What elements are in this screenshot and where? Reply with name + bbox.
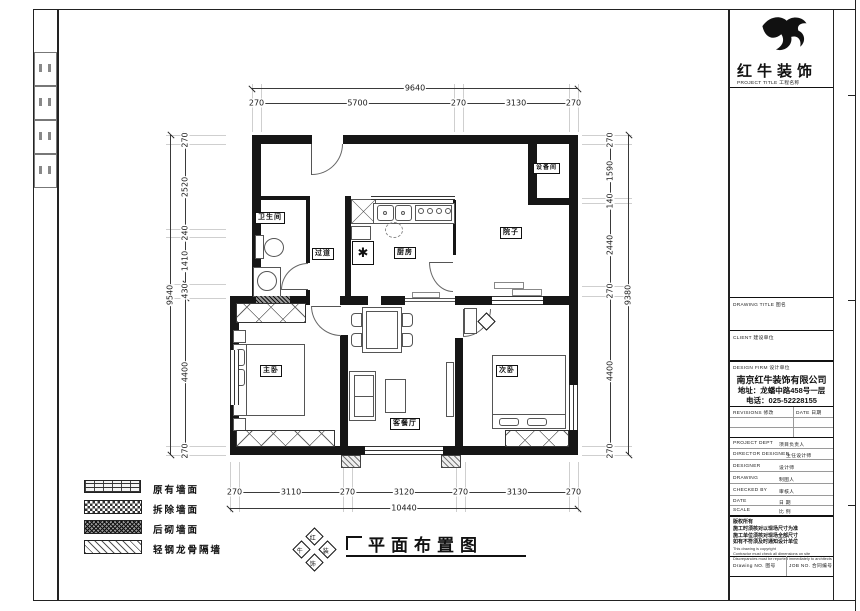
edge-strip-mark bbox=[48, 166, 51, 174]
wall-segment bbox=[306, 196, 310, 263]
job-no-label: JOB NO. 合同编号 bbox=[789, 562, 832, 569]
row-label-zh: 设计师 bbox=[779, 464, 794, 471]
toilet-tank bbox=[255, 235, 264, 259]
shaft-cabinet bbox=[351, 226, 371, 240]
dim-number: 430 bbox=[181, 282, 190, 299]
bed-headboard-line bbox=[493, 414, 565, 415]
dim-number: 270 bbox=[606, 442, 615, 459]
logo-char: 红 bbox=[310, 533, 316, 542]
titleblock-separator bbox=[730, 556, 833, 557]
extension-line bbox=[261, 84, 262, 132]
dim-number: 2520 bbox=[181, 175, 190, 197]
extension-line bbox=[166, 237, 226, 238]
sheet-title: 平面布置图 bbox=[368, 531, 483, 556]
row-label-zh: 审核人 bbox=[779, 488, 794, 495]
door-swing-arc bbox=[312, 144, 343, 175]
room-label-kitchen: 厨房 bbox=[394, 247, 416, 259]
dim-number: 270 bbox=[565, 488, 582, 497]
dim-number: 9640 bbox=[404, 84, 426, 93]
titleblock-separator bbox=[730, 297, 833, 298]
wall-segment bbox=[261, 196, 306, 200]
title-logo: 红 牛 装 饰 bbox=[294, 529, 336, 571]
row-label-en: DATE bbox=[733, 499, 747, 504]
extension-line bbox=[166, 284, 226, 285]
dim-number: 9540 bbox=[166, 284, 175, 306]
notes-block: 版权所有 施工时须核对以现场尺寸为准 施工单位须核对现场全部尺寸 如有不符须及时… bbox=[733, 519, 831, 561]
brand-subtitle: PROJECT TITLE 工程名称 bbox=[737, 79, 800, 86]
sink-drain bbox=[401, 211, 405, 215]
legend-label: 拆除墙面 bbox=[153, 502, 199, 516]
drawing-sheet: 9640270570027031302702703110270312027031… bbox=[0, 0, 860, 611]
extension-line bbox=[454, 84, 455, 132]
row-line bbox=[730, 495, 833, 496]
dim-number: 270 bbox=[181, 131, 190, 148]
bed-headboard-line bbox=[246, 345, 247, 415]
dim-number: 9380 bbox=[624, 284, 633, 306]
extension-line bbox=[166, 229, 226, 230]
door-track bbox=[405, 298, 455, 299]
edge-strip-cell bbox=[34, 120, 57, 154]
edge-strip-mark bbox=[39, 64, 42, 72]
dim-number: 1410 bbox=[181, 249, 190, 271]
dim-number: 270 bbox=[450, 99, 467, 108]
wall-segment bbox=[340, 296, 352, 305]
revisions-row-line bbox=[730, 417, 833, 418]
edge-strip-mark bbox=[48, 98, 51, 106]
title-logo-diamond: 饰 bbox=[305, 553, 323, 571]
edge-strip-mark bbox=[39, 132, 42, 140]
dim-number: 3120 bbox=[393, 488, 415, 497]
revisions-row-line bbox=[730, 427, 833, 428]
dim-number: 270 bbox=[565, 99, 582, 108]
frame-outer-right bbox=[855, 0, 856, 611]
dim-number: 3130 bbox=[505, 99, 527, 108]
sliding-door-panel bbox=[512, 289, 542, 296]
titleblock-separator bbox=[730, 437, 833, 438]
dining-chair bbox=[402, 313, 413, 327]
wall-segment bbox=[455, 296, 492, 305]
door-swing-arc bbox=[281, 263, 308, 290]
titleblock-separator bbox=[730, 576, 833, 577]
section-drawing-title: DRAWING TITLE 图名 bbox=[733, 301, 786, 308]
legend-swatch-existing-wall bbox=[84, 480, 141, 493]
fold-mark bbox=[848, 505, 856, 506]
column-stub bbox=[441, 455, 461, 468]
drawing-no-label: Drawing NO. 图号 bbox=[733, 562, 776, 569]
dim-number: 240 bbox=[181, 224, 190, 241]
titleblock-separator bbox=[730, 330, 833, 331]
edge-strip-mark bbox=[48, 64, 51, 72]
edge-strip-mark bbox=[48, 132, 51, 140]
shaft-symbol: ✱ bbox=[358, 246, 369, 261]
legend-label: 后砌墙面 bbox=[153, 522, 199, 536]
fold-mark bbox=[848, 300, 856, 301]
dim-number: 270 bbox=[452, 488, 469, 497]
company-phone: 电话：025-52228155 bbox=[730, 395, 833, 406]
footer-divider bbox=[786, 556, 787, 576]
dim-number: 270 bbox=[248, 99, 265, 108]
door-swing-arc bbox=[311, 306, 341, 336]
range-hood bbox=[385, 222, 403, 238]
wall-segment bbox=[455, 338, 463, 446]
wall-segment bbox=[528, 198, 578, 205]
row-label-zh: 项目负责人 bbox=[779, 441, 805, 448]
room-label-living-dining: 客餐厅 bbox=[390, 418, 420, 430]
dim-number: 270 bbox=[339, 488, 356, 497]
dim-number: 4400 bbox=[606, 360, 615, 382]
frame-titleblock-left bbox=[728, 9, 730, 601]
wall-segment bbox=[306, 290, 310, 296]
fold-mark bbox=[848, 95, 856, 96]
legend-swatch-demolished-wall bbox=[84, 500, 142, 514]
room-label-master-bedroom: 主卧 bbox=[260, 365, 282, 377]
titleblock-separator bbox=[730, 406, 833, 407]
wardrobe bbox=[236, 303, 306, 323]
room-label-corridor: 过道 bbox=[312, 248, 334, 260]
tv-cabinet bbox=[446, 362, 454, 417]
row-label-en: DESIGNER bbox=[733, 464, 760, 469]
dim-number: 1590 bbox=[606, 160, 615, 182]
brand-name: 红牛装饰 bbox=[737, 60, 817, 81]
dim-number: 10440 bbox=[390, 504, 417, 513]
dim-number: 270 bbox=[606, 131, 615, 148]
sofa-cushion-split bbox=[355, 396, 373, 397]
extension-line bbox=[166, 135, 226, 136]
bull-logo bbox=[757, 13, 811, 59]
titleblock-separator bbox=[730, 87, 833, 88]
window bbox=[365, 446, 443, 455]
frame-bottom bbox=[33, 600, 856, 601]
room-label-utility: 设备间 bbox=[533, 163, 560, 174]
dim-number: 270 bbox=[226, 488, 243, 497]
edge-strip-cell bbox=[34, 154, 57, 188]
room-label-yard: 院子 bbox=[500, 227, 522, 239]
row-label-zh: 制图人 bbox=[779, 476, 794, 483]
washing-machine-drum bbox=[257, 271, 277, 291]
wall-segment bbox=[381, 296, 405, 305]
note-line: 施工时须核对以现场尺寸为准 bbox=[733, 526, 831, 533]
extension-line bbox=[463, 84, 464, 132]
toilet-bowl bbox=[264, 238, 284, 257]
dim-number: 3130 bbox=[506, 488, 528, 497]
extension-line bbox=[166, 455, 226, 456]
logo-char: 牛 bbox=[297, 546, 303, 555]
nightstand bbox=[233, 330, 246, 343]
edge-strip-cell bbox=[34, 86, 57, 120]
title-corner-mark bbox=[346, 536, 362, 550]
dining-table-inner bbox=[366, 311, 398, 349]
extension-line bbox=[569, 84, 570, 132]
extension-line bbox=[166, 298, 226, 299]
edge-strip-mark bbox=[39, 98, 42, 106]
frame-titleblock-right bbox=[833, 9, 834, 601]
titleblock-separator bbox=[730, 360, 833, 362]
dim-number: 270 bbox=[181, 442, 190, 459]
logo-char: 装 bbox=[323, 546, 329, 555]
title-logo-diamond: 牛 bbox=[292, 540, 310, 558]
legend-label: 原有墙面 bbox=[153, 482, 199, 496]
row-line bbox=[730, 505, 833, 506]
row-label-en: CHECKED BY bbox=[733, 488, 767, 493]
dining-chair bbox=[402, 333, 413, 347]
extension-line bbox=[166, 446, 226, 447]
row-line bbox=[730, 448, 833, 449]
wall-segment bbox=[528, 144, 537, 205]
row-label-en: SCALE bbox=[733, 508, 750, 513]
pillow bbox=[499, 418, 519, 426]
dim-number: 4400 bbox=[181, 361, 190, 383]
edge-strip-cell bbox=[34, 52, 57, 86]
window bbox=[492, 296, 543, 305]
revisions-divider bbox=[793, 407, 794, 437]
window bbox=[371, 196, 455, 200]
row-line bbox=[730, 483, 833, 484]
section-client: CLIENT 建设单位 bbox=[733, 334, 774, 341]
wall-segment bbox=[252, 135, 312, 144]
sheet-title-underline bbox=[346, 555, 526, 557]
frame-top bbox=[33, 9, 856, 10]
stove-burner bbox=[436, 208, 442, 214]
dim-number: 140 bbox=[606, 192, 615, 209]
room-label-second-bedroom: 次卧 bbox=[496, 365, 518, 377]
door-track bbox=[405, 301, 455, 302]
legend-swatch-steel-keel-partition bbox=[84, 540, 142, 554]
shaft-symbol-box: ✱ bbox=[352, 241, 374, 265]
pillow bbox=[527, 418, 547, 426]
section-design-firm: DESIGN FIRM 设计单位 bbox=[733, 364, 790, 371]
column-stub bbox=[341, 455, 361, 468]
coffee-table bbox=[385, 379, 406, 413]
stove-burner bbox=[418, 208, 424, 214]
stove-burner bbox=[445, 208, 451, 214]
row-label-en: DRAWING bbox=[733, 476, 758, 481]
wall-segment bbox=[343, 135, 578, 144]
sliding-door-panel bbox=[412, 292, 440, 298]
note-line: 版权所有 bbox=[733, 519, 831, 526]
wardrobe bbox=[505, 430, 569, 447]
row-label-zh: 比 例 bbox=[779, 508, 791, 515]
row-label-zh: 主任设计师 bbox=[786, 452, 812, 459]
dim-number: 270 bbox=[606, 282, 615, 299]
dining-chair bbox=[351, 313, 362, 327]
title-logo-diamond: 红 bbox=[305, 527, 323, 545]
dim-number: 3110 bbox=[280, 488, 302, 497]
wall-segment bbox=[340, 335, 348, 446]
title-logo-diamond: 装 bbox=[318, 540, 336, 558]
row-line bbox=[730, 471, 833, 472]
row-line bbox=[730, 459, 833, 460]
row-label-en: PROJECT DEPT bbox=[733, 441, 773, 446]
window bbox=[569, 385, 578, 430]
edge-strip-mark bbox=[39, 166, 42, 174]
dim-line bbox=[252, 103, 578, 104]
titleblock-separator bbox=[730, 515, 833, 517]
window bbox=[230, 350, 239, 405]
note-line: 如有不符须及时通知设计单位 bbox=[733, 539, 831, 546]
desk bbox=[464, 308, 477, 334]
logo-char: 饰 bbox=[310, 559, 316, 568]
legend-swatch-new-wall bbox=[84, 520, 142, 534]
wall-segment bbox=[543, 296, 569, 305]
dining-chair bbox=[351, 333, 362, 347]
revisions-header: REVISIONS 修改 bbox=[733, 409, 774, 416]
extension-line bbox=[166, 144, 226, 145]
wall-segment bbox=[352, 296, 368, 305]
sink-drain bbox=[383, 211, 387, 215]
dim-number: 5700 bbox=[346, 99, 368, 108]
stove-burner bbox=[427, 208, 433, 214]
legend-label: 轻钢龙骨隔墙 bbox=[153, 542, 222, 556]
revisions-date-header: DATE 日期 bbox=[796, 409, 821, 416]
sliding-door-panel bbox=[494, 282, 524, 289]
room-label-bathroom: 卫生间 bbox=[255, 212, 285, 224]
dim-number: 2440 bbox=[606, 233, 615, 255]
door-swing-arc bbox=[429, 262, 453, 292]
row-label-en: DIRECTOR DESIGNER bbox=[733, 452, 789, 457]
wardrobe bbox=[236, 430, 335, 447]
frame-main-divider bbox=[57, 9, 59, 601]
